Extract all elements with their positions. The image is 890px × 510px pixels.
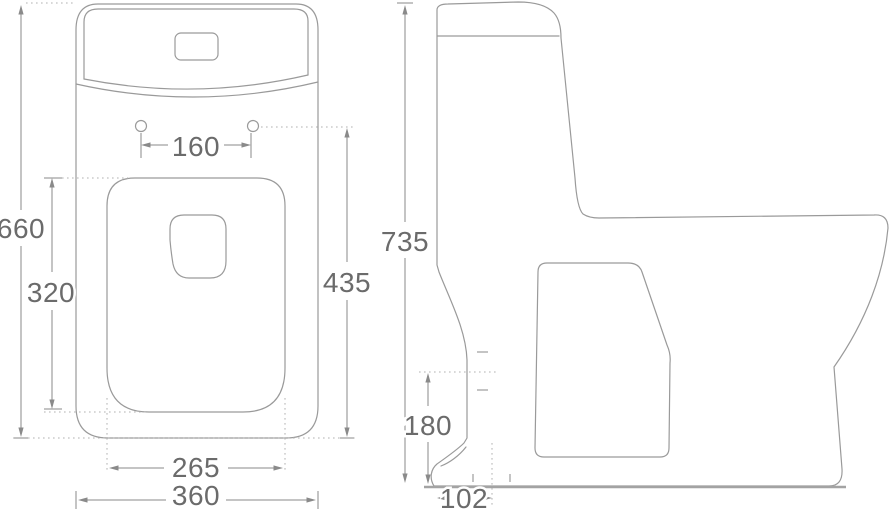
side-panel-outline xyxy=(535,263,670,457)
dim-label-102: 102 xyxy=(440,483,488,510)
arrowhead xyxy=(344,128,349,138)
front-body-outline xyxy=(76,4,318,438)
arrowhead xyxy=(78,497,88,502)
front-seat-outline xyxy=(107,178,285,412)
front-tank-lid xyxy=(84,9,308,79)
side-profile-outline xyxy=(431,2,888,486)
arrowhead xyxy=(274,465,284,470)
arrowhead xyxy=(141,142,151,147)
dim-label-360: 360 xyxy=(172,480,220,510)
arrowhead xyxy=(242,142,252,147)
side-dimensions: 735 180 102 xyxy=(381,3,498,510)
arrowhead xyxy=(402,474,407,484)
drawing-canvas: 660 320 160 435 265 360 xyxy=(0,0,890,510)
arrowhead xyxy=(307,497,317,502)
arrowhead xyxy=(425,475,430,485)
arrowhead xyxy=(18,5,23,15)
dim-label-265: 265 xyxy=(172,452,220,483)
arrowhead xyxy=(49,400,54,410)
dim-label-735: 735 xyxy=(381,226,429,257)
arrowhead xyxy=(49,178,54,188)
arrowhead xyxy=(109,465,119,470)
water-level-dashes xyxy=(477,352,488,390)
bolt-hole-right xyxy=(248,121,259,132)
side-view xyxy=(424,2,888,487)
dim-label-180: 180 xyxy=(404,410,452,441)
front-dimensions: 660 320 160 435 265 360 xyxy=(0,3,371,510)
arrowhead xyxy=(402,5,407,15)
toilet-dimension-drawing: 660 320 160 435 265 360 xyxy=(0,0,890,510)
dim-label-160: 160 xyxy=(172,131,220,162)
flush-button xyxy=(175,33,218,60)
arrowhead xyxy=(425,373,430,383)
front-bowl-opening xyxy=(170,215,226,278)
dim-label-320: 320 xyxy=(27,277,75,308)
arrowhead xyxy=(18,428,23,438)
arrowhead xyxy=(344,428,349,438)
bolt-hole-left xyxy=(136,121,147,132)
front-view xyxy=(76,4,318,438)
dim-label-435: 435 xyxy=(323,267,371,298)
front-tank-lid-bottom xyxy=(84,75,308,89)
side-trap-curve xyxy=(441,447,466,466)
dim-label-660: 660 xyxy=(0,213,45,244)
